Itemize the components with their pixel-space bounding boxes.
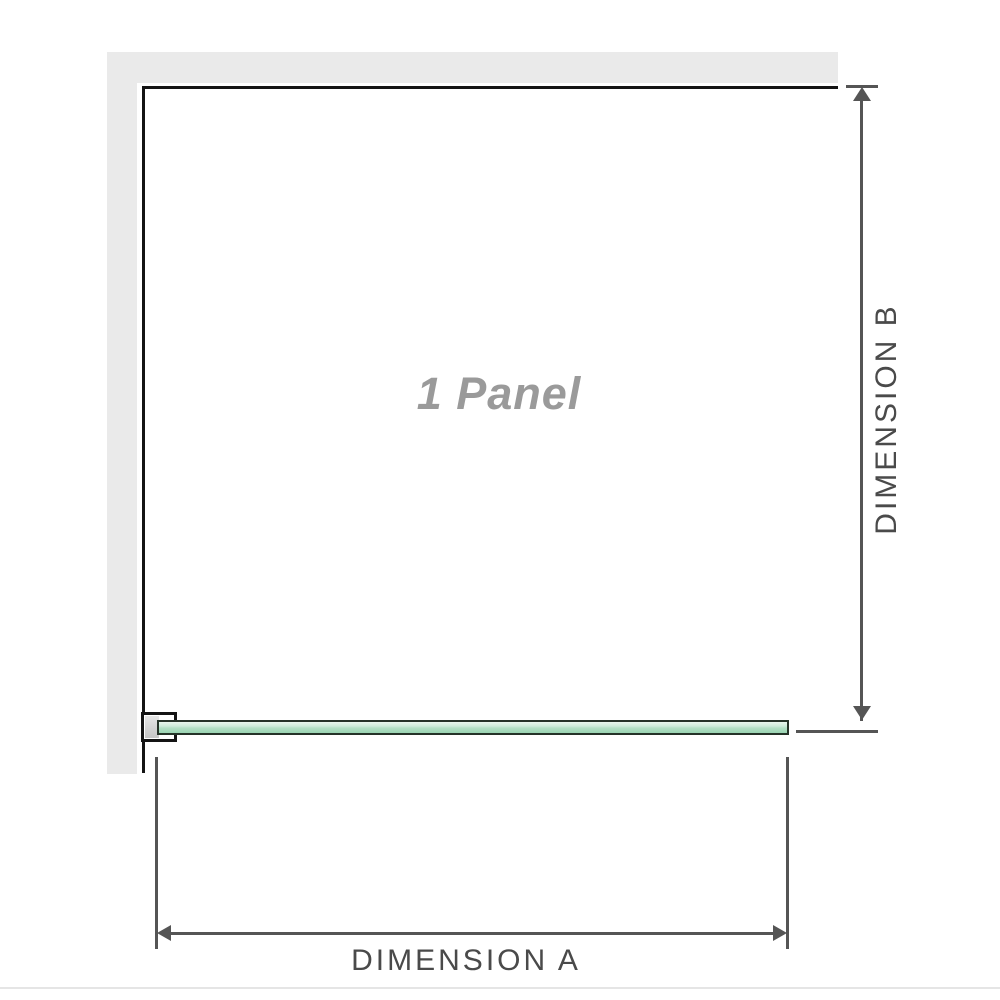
dimension-a-label: DIMENSION A (266, 944, 666, 978)
panel-outline-top (142, 86, 838, 89)
dimension-b-arrowhead-top-icon (853, 87, 871, 101)
dimension-b-label: DIMENSION B (870, 269, 904, 569)
panel-count-label: 1 Panel (299, 368, 699, 420)
panel-outline-left (142, 86, 145, 773)
dimension-b-line (860, 97, 863, 721)
dimension-a-arrowhead-right-icon (773, 925, 787, 941)
dimension-b-cap-bottom (796, 730, 878, 733)
dimension-a-line (168, 932, 774, 935)
dimension-a-arrowhead-left-icon (157, 925, 171, 941)
dimension-b-arrowhead-bottom-icon (853, 706, 871, 720)
bottom-divider-line (0, 987, 1000, 989)
dimension-a-extension-right (786, 757, 789, 949)
wall-top-strip (107, 52, 838, 83)
diagram-canvas: 1 Panel DIMENSION B DIMENSION A (0, 0, 1000, 1000)
wall-side-strip (107, 52, 137, 774)
dimension-a-extension-left (155, 757, 158, 949)
glass-panel-plan-view (157, 720, 789, 735)
